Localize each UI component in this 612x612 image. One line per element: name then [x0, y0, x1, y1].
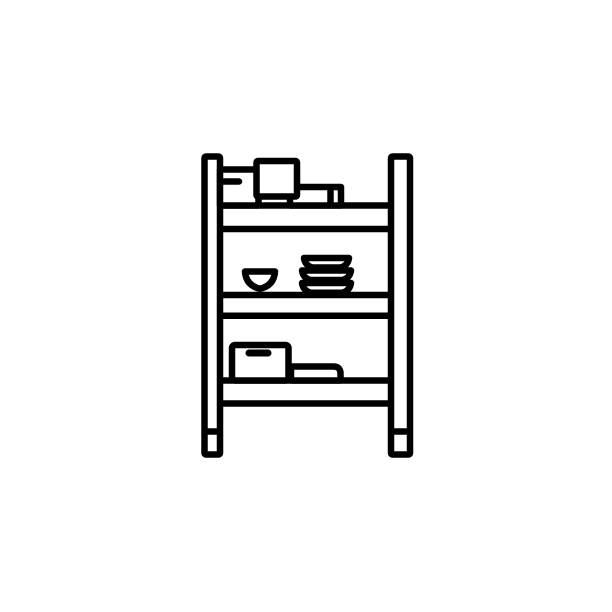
shelf-with-items-icon: [0, 0, 612, 612]
middle-shelf-stacked-dish-3: [302, 283, 351, 293]
icon-canvas: [0, 0, 612, 612]
bottom-shelf-tray: [291, 367, 341, 381]
middle-shelf-bowl: [245, 272, 275, 289]
middle-shelf-stacked-dish-1: [304, 258, 349, 268]
top-shelf-small-box: [220, 170, 259, 206]
middle-shelf-stacked-dish-2: [302, 271, 351, 281]
top-shelf-tall-box: [257, 161, 298, 197]
right-post: [391, 157, 410, 455]
